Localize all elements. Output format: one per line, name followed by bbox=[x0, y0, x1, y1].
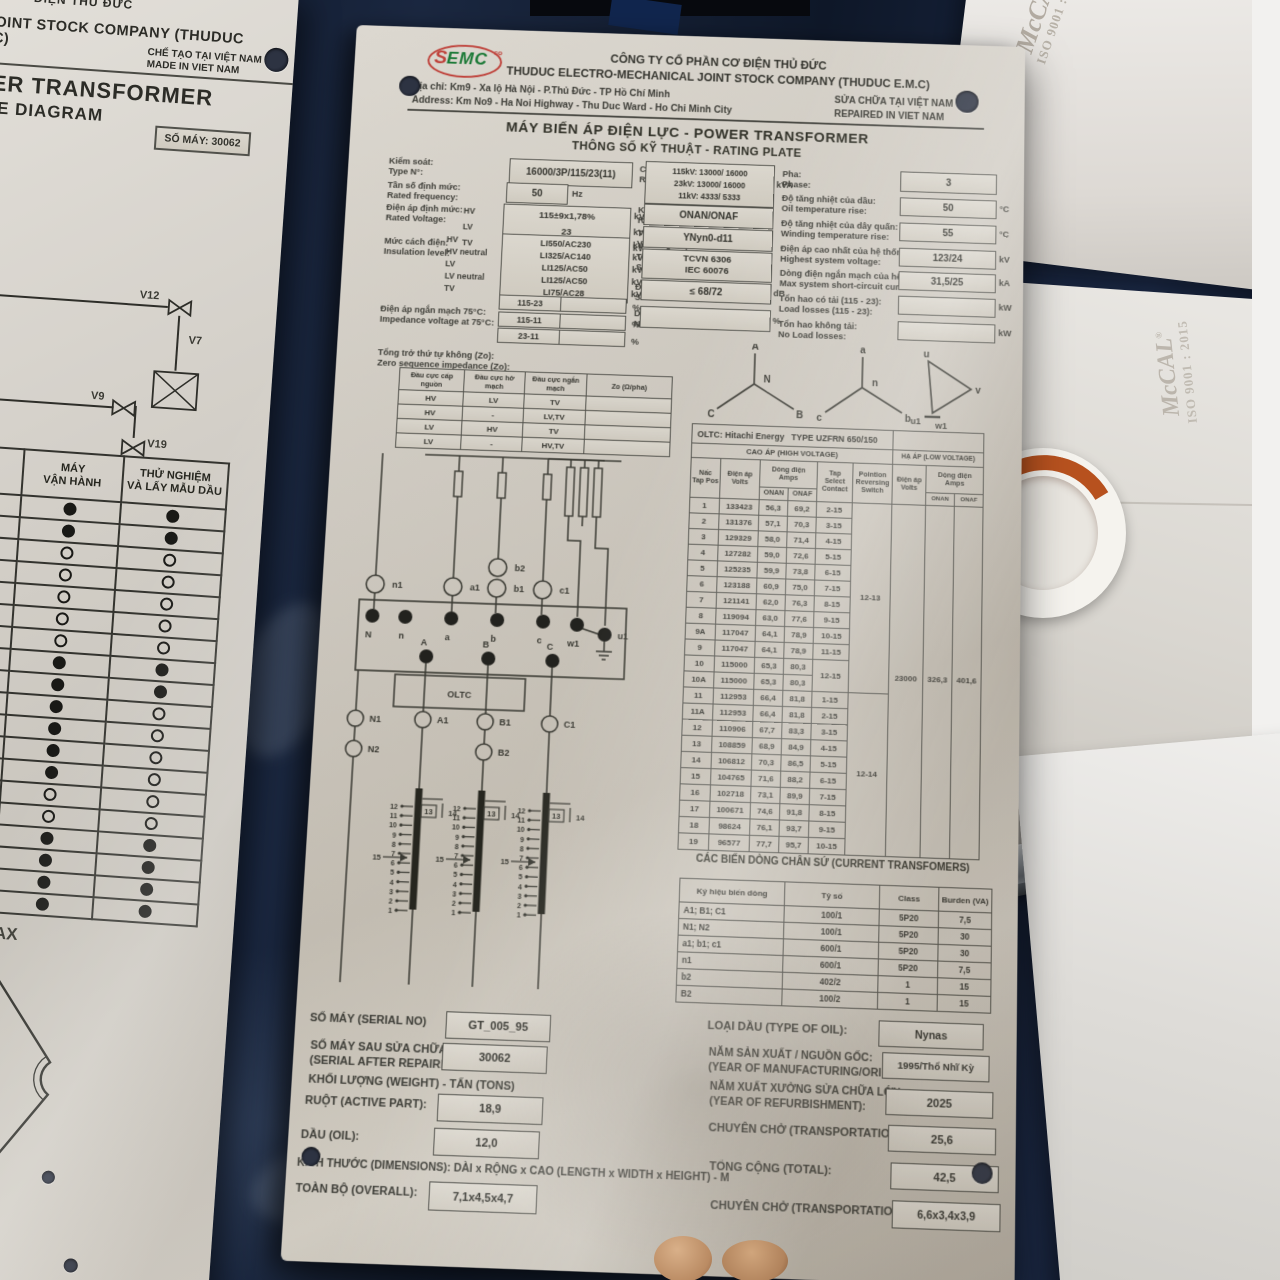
cell: 12 bbox=[682, 719, 713, 736]
cell: 12-13 bbox=[848, 503, 892, 694]
cell: 2-15 bbox=[811, 707, 848, 724]
open-dot bbox=[156, 641, 170, 655]
cell: 30 bbox=[938, 944, 992, 963]
value-winding-rise: 55 bbox=[899, 222, 996, 244]
svg-label: n1 bbox=[392, 580, 403, 590]
cell: B2 bbox=[676, 985, 782, 1006]
repaired-note: SỬA CHỮA TẠI VIỆT NAM REPAIRED IN VIET N… bbox=[834, 94, 953, 125]
cell: 17 bbox=[679, 800, 710, 817]
cell: 80,3 bbox=[783, 658, 812, 675]
cell: 2 bbox=[689, 513, 719, 530]
cell: 8 bbox=[686, 607, 716, 624]
sub-ins-hv: HV bbox=[446, 234, 458, 244]
cell: 73,1 bbox=[750, 786, 780, 803]
cell: 6-15 bbox=[810, 772, 847, 790]
svg-label: 11 bbox=[517, 817, 525, 825]
cell: 58,0 bbox=[758, 531, 787, 548]
cell: - bbox=[460, 435, 522, 452]
filled-dot bbox=[139, 883, 153, 897]
cell: 117047 bbox=[715, 640, 756, 657]
mounting-hole bbox=[264, 47, 290, 73]
cell: 68,9 bbox=[752, 738, 782, 755]
label-highest-voltage: Điện áp cao nhất của hệ thống: Highest s… bbox=[780, 244, 910, 269]
cell: 12-15 bbox=[812, 659, 849, 692]
svg-label: C1 bbox=[563, 719, 575, 730]
svg-label: 6 bbox=[519, 865, 524, 873]
label-type-no: Kiểm soát: Type N°: bbox=[388, 156, 434, 178]
value-power: 115kV: 13000/ 16000 23kV: 13000/ 16000 1… bbox=[644, 161, 775, 208]
cell: 110906 bbox=[712, 720, 753, 738]
svg-label: 9 bbox=[392, 832, 397, 840]
impedance-pair: 23-11 bbox=[497, 328, 560, 345]
cell: 108859 bbox=[712, 736, 753, 754]
value-transport-dimensions: 6,6x3,4x3,9 bbox=[892, 1200, 1001, 1232]
value-oil-rise: 50 bbox=[900, 197, 997, 219]
vector-group-diagrams: ANCBancbuvu1w1 bbox=[697, 342, 984, 434]
cell: 7,5 bbox=[938, 961, 992, 980]
cell: 4-15 bbox=[815, 533, 851, 550]
cell: 56,3 bbox=[759, 500, 788, 517]
open-dot bbox=[60, 546, 74, 560]
cell: 9-15 bbox=[808, 821, 845, 839]
svg-label: a bbox=[860, 345, 866, 356]
filled-dot bbox=[153, 685, 167, 699]
cell: 5P20 bbox=[879, 926, 939, 945]
ct-h3: Burden (VA) bbox=[939, 887, 992, 913]
svg-label: 4 bbox=[390, 879, 395, 887]
cell: 30 bbox=[938, 928, 991, 947]
cell: 7-15 bbox=[809, 788, 846, 806]
svg-label: N2 bbox=[367, 744, 379, 755]
filled-dot bbox=[37, 876, 51, 890]
rating-plate: S EMC co CÔNG TY CỔ PHẦN CƠ ĐIỆN THỦ ĐỨC… bbox=[281, 25, 1026, 1280]
paper-edge-strip bbox=[1252, 0, 1280, 770]
label-serial-no: SỐ MÁY (SERIAL NO) bbox=[310, 1013, 427, 1029]
svg-label: c bbox=[816, 413, 822, 424]
cell: 104765 bbox=[710, 769, 751, 787]
filled-dot bbox=[45, 766, 59, 780]
zero-sequence-table: Đầu cực cấp nguồn Đầu cực hở mạch Đầu cự… bbox=[395, 367, 673, 457]
svg-label: N bbox=[763, 375, 770, 386]
cell: 73,8 bbox=[786, 563, 815, 580]
sub-lv: LV bbox=[463, 222, 473, 232]
ct-h2: Class bbox=[879, 885, 939, 911]
svg-label: 12 bbox=[390, 804, 398, 812]
logo-text: EMC bbox=[446, 49, 488, 69]
filled-dot bbox=[155, 663, 169, 677]
filled-dot bbox=[53, 656, 67, 670]
cell: 5 bbox=[687, 560, 717, 577]
cell: 10A bbox=[683, 671, 714, 688]
cell: 11-15 bbox=[813, 643, 849, 660]
oltc-col-lv-onan: ONAN bbox=[926, 493, 955, 507]
svg-label: 5 bbox=[390, 870, 395, 878]
cell: 15 bbox=[937, 995, 991, 1014]
cell: 65,3 bbox=[754, 673, 784, 690]
label-year-refurbishment: NĂM XUẤT XƯỞNG SỬA CHỮA LỚN: (YEAR OF RE… bbox=[709, 1080, 904, 1116]
svg-label: 12 bbox=[453, 806, 461, 814]
open-dot bbox=[159, 597, 173, 611]
label-oil-type: LOẠI DẦU (TYPE OF OIL): bbox=[707, 1021, 847, 1038]
oil-level-gauge: 961MAXMIN bbox=[0, 920, 99, 1233]
cell: 4-15 bbox=[810, 740, 847, 757]
cell: 84,9 bbox=[781, 739, 811, 756]
paper-watermark: McCAL® ISO 9001 : 2015 bbox=[1150, 320, 1199, 427]
winding-schematic: OLTCn1a1b1c1b2Nnabcw1u1ABCN1N2A1B1B2C112… bbox=[328, 449, 676, 1010]
svg-label: 1 bbox=[388, 908, 393, 916]
value-oil-weight: 12,0 bbox=[433, 1128, 540, 1160]
oltc-col-reversing: Pointion Reversing Switch bbox=[852, 463, 892, 504]
label-weight-section: KHỐI LƯỢNG (WEIGHT) - TẤN (TONS) bbox=[308, 1074, 515, 1093]
svg-label: 15 bbox=[372, 852, 381, 862]
cell: 106812 bbox=[711, 752, 752, 770]
value-sound: ≤ 68/72 bbox=[640, 279, 771, 304]
cell: 59,0 bbox=[757, 547, 786, 564]
mounting-hole bbox=[972, 1162, 993, 1184]
cell: 66,4 bbox=[753, 689, 783, 706]
value-insulation: LI550/AC230 LI325/AC140 LI125/AC50 LI125… bbox=[499, 233, 630, 303]
filled-dot bbox=[39, 854, 53, 868]
cell: 133423 bbox=[719, 498, 759, 515]
impedance-value-empty bbox=[561, 297, 627, 314]
svg-label: u bbox=[923, 349, 929, 360]
cell: 11A bbox=[682, 703, 713, 720]
label-overall: TOÀN BỘ (OVERALL): bbox=[295, 1183, 418, 1199]
open-dot bbox=[43, 788, 57, 802]
open-dot bbox=[158, 619, 172, 633]
oltc-col-onan: ONAN bbox=[759, 487, 788, 501]
cell: 60,9 bbox=[756, 578, 785, 595]
ct-h1: Tỷ số bbox=[784, 882, 879, 909]
cell: 1-15 bbox=[812, 691, 849, 708]
svg-label: C bbox=[547, 641, 555, 651]
cell: 72,6 bbox=[786, 548, 815, 565]
label-active-part: RUỘT (ACTIVE PART): bbox=[305, 1095, 427, 1111]
unit-hz: Hz bbox=[572, 189, 583, 199]
svg-label: c1 bbox=[559, 585, 570, 595]
open-dot bbox=[161, 575, 175, 589]
cell: 119094 bbox=[716, 608, 756, 625]
cell: 1 bbox=[877, 992, 937, 1011]
cell: 5P20 bbox=[878, 959, 938, 978]
svg-label: N bbox=[365, 629, 372, 639]
svg-label: 6 bbox=[391, 860, 396, 868]
open-dot bbox=[56, 612, 70, 626]
filled-dot bbox=[40, 832, 54, 846]
sub-ins-lv: LV bbox=[445, 259, 455, 269]
oltc-col-lv-onaf: ONAF bbox=[954, 494, 983, 508]
unit-percent: % bbox=[631, 337, 639, 347]
impedance-pair: 115-11 bbox=[498, 311, 561, 328]
oltc-col-lv-amps: Dòng điện Amps bbox=[926, 465, 984, 494]
svg-label: 4 bbox=[518, 884, 523, 892]
svg-label: 15 bbox=[500, 857, 509, 867]
cell: 100671 bbox=[709, 801, 750, 819]
cell: 6 bbox=[687, 576, 717, 593]
cell: 80,3 bbox=[783, 674, 813, 691]
filled-dot bbox=[51, 678, 65, 692]
svg-label: V9 bbox=[91, 390, 105, 403]
zseq-h0: Đầu cực cấp nguồn bbox=[399, 368, 465, 392]
value-highest-voltage: 123/24 bbox=[899, 248, 996, 270]
filled-dot bbox=[143, 839, 157, 853]
svg-label: 2 bbox=[388, 898, 393, 906]
svg-label: 1 bbox=[451, 910, 456, 918]
value-serial-after-repair: 30062 bbox=[441, 1043, 548, 1074]
zseq-h3: Zo (Ω/pha) bbox=[586, 374, 672, 399]
svg-label: B bbox=[482, 639, 489, 649]
cell: 93,7 bbox=[779, 820, 809, 837]
open-dot bbox=[54, 634, 68, 648]
unit-c: °C bbox=[999, 230, 1009, 240]
left-plate-company-partial-top: ĐIỆN THỦ ĐỨC bbox=[34, 0, 134, 12]
emc-logo: S EMC co bbox=[427, 44, 503, 79]
cell: 71,6 bbox=[751, 770, 781, 787]
sub-hv: HV bbox=[463, 206, 475, 216]
svg-label: 3 bbox=[389, 889, 394, 897]
svg-label: n bbox=[398, 630, 404, 640]
svg-label: u1 bbox=[910, 416, 921, 426]
svg-label: 9 bbox=[520, 836, 525, 844]
svg-label: MAX bbox=[0, 922, 19, 944]
open-dot bbox=[162, 554, 176, 568]
svg-label: C bbox=[707, 409, 714, 420]
svg-label: V19 bbox=[147, 438, 167, 451]
svg-label: 10 bbox=[452, 825, 460, 833]
svg-label: b1 bbox=[513, 584, 524, 595]
svg-label: 10 bbox=[389, 822, 398, 830]
cell: 5P20 bbox=[879, 909, 939, 928]
cell: 19 bbox=[678, 833, 709, 850]
cell: 64,1 bbox=[755, 641, 784, 658]
cell: 74,6 bbox=[750, 803, 780, 820]
paper-sheet-bottom bbox=[1014, 730, 1280, 1280]
cell: 7 bbox=[686, 591, 716, 608]
cell: 77,7 bbox=[749, 835, 779, 852]
cell: 66,4 bbox=[753, 705, 783, 722]
fingertip bbox=[654, 1236, 712, 1280]
value-no-load-losses bbox=[897, 321, 995, 343]
svg-label: c bbox=[537, 635, 543, 645]
open-dot bbox=[42, 810, 56, 824]
oltc-type: TYPE UZFRN 650/150 bbox=[791, 432, 877, 445]
cell: 65,3 bbox=[754, 657, 784, 674]
svg-label: w1 bbox=[566, 638, 580, 649]
cell: 77,6 bbox=[785, 611, 814, 628]
svg-label: 3 bbox=[452, 891, 457, 899]
svg-label: b bbox=[490, 633, 496, 643]
photo-scene: McCAL® ISO 9001 : 2015 McCAL® ISO 9001 :… bbox=[0, 0, 1280, 1280]
svg-label: B1 bbox=[499, 717, 511, 728]
svg-label: w1 bbox=[934, 421, 947, 431]
cell: 7,5 bbox=[938, 911, 991, 929]
cell: 23000 bbox=[885, 504, 925, 858]
svg-label: 11 bbox=[452, 815, 460, 823]
svg-label: b2 bbox=[514, 563, 525, 573]
valve-col-may-van-hanh: MÁY VẬN HÀNH bbox=[21, 449, 123, 502]
svg-label: 8 bbox=[455, 844, 460, 852]
cell: 62,0 bbox=[756, 594, 785, 611]
cell: 9 bbox=[685, 639, 716, 656]
unit-c: °C bbox=[1000, 204, 1010, 214]
value-no-load-current bbox=[639, 306, 771, 332]
label-dimensions-section: KÍCH THƯỚC (DIMENSIONS): DÀI x RỘNG x CA… bbox=[297, 1157, 734, 1185]
value-serial-no: GT_005_95 bbox=[445, 1011, 551, 1042]
cell: 3-15 bbox=[816, 517, 852, 534]
cell: 71,4 bbox=[787, 532, 816, 549]
filled-dot bbox=[62, 524, 76, 538]
cell: 18 bbox=[678, 816, 709, 833]
svg-label: 14 bbox=[576, 813, 586, 823]
filled-dot bbox=[166, 510, 180, 524]
cell: 12-14 bbox=[845, 693, 889, 857]
label-impedance: Điện áp ngắn mạch 75°C: Impedance voltag… bbox=[379, 304, 494, 329]
oltc-maker: OLTC: Hitachi Energy bbox=[697, 429, 784, 442]
label-phase: Pha: Phase: bbox=[782, 169, 811, 190]
cell: 64,1 bbox=[755, 625, 784, 642]
cell: 100/2 bbox=[782, 989, 878, 1009]
value-transport-weight: 25,6 bbox=[888, 1125, 996, 1156]
cell: 70,3 bbox=[751, 754, 781, 771]
filled-dot bbox=[50, 700, 64, 714]
cell: 3 bbox=[688, 528, 718, 545]
cell: 121141 bbox=[716, 592, 756, 609]
hand-fingers bbox=[636, 1222, 826, 1280]
svg-label: a1 bbox=[470, 582, 481, 592]
svg-label: 15 bbox=[435, 854, 444, 864]
impedance-value-empty bbox=[559, 330, 625, 347]
cell: 112953 bbox=[713, 688, 754, 705]
left-plate-serial-box: SỐ MÁY: 30062 bbox=[154, 126, 251, 157]
cell: 70,3 bbox=[787, 516, 816, 533]
value-active-part: 18,9 bbox=[437, 1094, 544, 1126]
filled-dot bbox=[48, 722, 62, 736]
cell: 115000 bbox=[714, 656, 755, 673]
zseq-h2: Đầu cực ngắn mạch bbox=[524, 372, 587, 396]
cell: 76,3 bbox=[785, 595, 814, 612]
unit-kv: kV bbox=[999, 255, 1010, 265]
cell: 5-15 bbox=[810, 756, 847, 773]
svg-label: A bbox=[752, 342, 759, 353]
label-winding-rise: Độ tăng nhiệt của dây quấn: Winding temp… bbox=[781, 218, 898, 242]
label-transport-dimensions: CHUYÊN CHỞ (TRANSPORTATION): bbox=[710, 1200, 909, 1219]
cell: 8-15 bbox=[814, 596, 850, 613]
cell: 8-15 bbox=[809, 805, 846, 823]
cell: 69,2 bbox=[787, 501, 816, 518]
cell: 401,6 bbox=[950, 506, 984, 860]
label-no-load-losses: Tổn hao không tải: No Load losses: bbox=[778, 319, 857, 343]
cell: 9-15 bbox=[814, 612, 850, 629]
svg-label: a bbox=[445, 632, 451, 642]
cell: 78,9 bbox=[784, 626, 813, 643]
svg-label: 8 bbox=[520, 846, 525, 854]
svg-label: 1 bbox=[517, 912, 522, 920]
value-phase: 3 bbox=[900, 171, 997, 195]
cell: 83,3 bbox=[782, 723, 812, 740]
cell: 98624 bbox=[709, 817, 750, 835]
svg-label: 10 bbox=[517, 827, 525, 835]
cell bbox=[584, 439, 670, 456]
cell: 4 bbox=[688, 544, 718, 561]
cell: 1 bbox=[689, 497, 719, 514]
svg-label: 13 bbox=[552, 811, 561, 821]
impedance-value-empty bbox=[560, 313, 626, 330]
cell: 81,8 bbox=[782, 706, 812, 723]
cell: LV bbox=[395, 433, 461, 450]
oltc-col-tap: Nấc Tap Pos bbox=[690, 457, 721, 498]
cell: 16 bbox=[680, 784, 711, 801]
label-oil-rise: Độ tăng nhiệt của dầu: Oil temperature r… bbox=[781, 193, 875, 217]
svg-label: 2 bbox=[517, 903, 522, 911]
value-year-origin: 1995/Thổ Nhĩ Kỳ bbox=[882, 1052, 990, 1082]
open-dot bbox=[149, 751, 163, 765]
svg-label: V12 bbox=[139, 289, 159, 302]
cell: 14 bbox=[681, 751, 712, 768]
svg-label: 5 bbox=[518, 874, 523, 882]
label-oil-weight: DẦU (OIL): bbox=[300, 1129, 359, 1143]
unit-ka: kA bbox=[999, 278, 1010, 288]
sub-ins-lvn: LV neutral bbox=[444, 271, 484, 282]
svg-label: B bbox=[796, 410, 803, 421]
cell: 95,7 bbox=[779, 836, 809, 853]
cell: 115000 bbox=[714, 672, 755, 689]
cell: 10-15 bbox=[813, 628, 849, 645]
svg-label: B2 bbox=[498, 747, 510, 758]
cell: 129329 bbox=[718, 529, 758, 546]
open-dot bbox=[57, 590, 71, 604]
label-rated-voltage: Điện áp định mức: Rated Voltage: bbox=[385, 202, 463, 225]
svg-label: N1 bbox=[369, 713, 381, 724]
cell: 96577 bbox=[708, 834, 749, 852]
sub-ins-hvn: HV neutral bbox=[446, 247, 488, 258]
value-overall: 7,1x4,5x4,7 bbox=[428, 1181, 538, 1214]
filled-dot bbox=[164, 532, 178, 546]
oltc-col-volts: Điện áp Volts bbox=[720, 458, 761, 499]
value-frequency: 50 bbox=[506, 182, 569, 205]
cell: 15 bbox=[937, 978, 991, 997]
cell: 81,8 bbox=[782, 690, 812, 707]
label-year-origin: NĂM SẢN XUẤT / NGUỒN GỐC: (YEAR OF MANUF… bbox=[708, 1046, 908, 1082]
mounting-hole bbox=[955, 90, 978, 113]
filled-dot bbox=[138, 905, 152, 919]
cell: 117047 bbox=[715, 624, 755, 641]
value-vector-group: YNyn0-d11 bbox=[642, 226, 773, 252]
oltc-col-onaf: ONAF bbox=[788, 488, 817, 502]
open-dot bbox=[150, 729, 164, 743]
cell: 89,9 bbox=[780, 787, 810, 804]
oltc-col-contact: Tap Select Contact bbox=[817, 462, 854, 503]
cell: 13 bbox=[681, 735, 712, 752]
oltc-col-lv-volts: Điện áp Volts bbox=[892, 464, 926, 505]
value-standard: TCVN 6306 IEC 60076 bbox=[641, 248, 772, 282]
svg-label: V7 bbox=[188, 334, 202, 347]
value-load-losses bbox=[898, 296, 996, 318]
sub-tv: TV bbox=[462, 238, 473, 248]
cell: 75,0 bbox=[785, 579, 814, 596]
cell: 102718 bbox=[710, 785, 751, 803]
cell: 76,1 bbox=[750, 819, 780, 836]
cell: 91,8 bbox=[779, 804, 809, 821]
filled-dot bbox=[141, 861, 155, 875]
cell: 88,2 bbox=[780, 771, 810, 788]
svg-label: 13 bbox=[487, 809, 496, 819]
value-short-circuit: 31,5/25 bbox=[898, 271, 996, 293]
cell: 78,9 bbox=[784, 642, 813, 659]
svg-label: A1 bbox=[437, 715, 449, 726]
svg-label: 9 bbox=[455, 834, 460, 842]
svg-label: 4 bbox=[453, 881, 458, 889]
cell: 5-15 bbox=[815, 549, 851, 566]
